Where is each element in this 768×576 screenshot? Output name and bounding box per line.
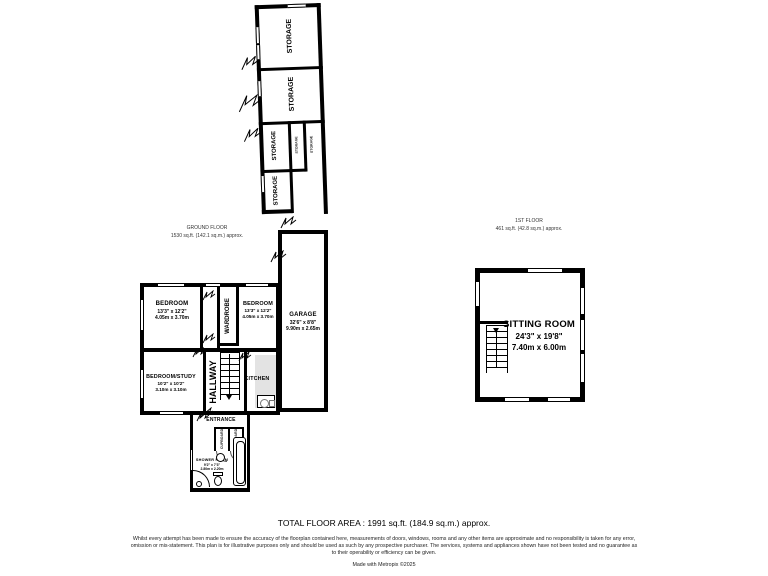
- stair-direction-arrow: [496, 331, 497, 367]
- first-floor-area: 461 sq.ft. (42.8 sq.m.) approx.: [469, 226, 589, 234]
- wall: [278, 230, 324, 234]
- opening-icon: [242, 127, 263, 144]
- window: [140, 300, 144, 330]
- opening-icon: [239, 55, 260, 72]
- stair-arrow-head: [493, 328, 499, 333]
- entrance-annex: ENTRANCE CUPBOARD CUPBOARD SHOWER ROOM 9…: [190, 412, 250, 492]
- opening-icon: [279, 216, 297, 230]
- appliance-panel: [269, 400, 275, 407]
- window: [158, 283, 184, 287]
- wall: [260, 169, 307, 174]
- opening-icon: [269, 250, 287, 264]
- window: [475, 282, 480, 306]
- house-section: BEDROOM 13'3" x 12'2" 4.05m x 3.70m WARD…: [140, 283, 280, 415]
- staircase: [220, 352, 240, 400]
- wall: [288, 121, 293, 172]
- appliance-dial: [260, 399, 269, 408]
- wall: [262, 209, 293, 214]
- room-label-bedroom: BEDROOM 13'3" x 12'2" 4.05m x 3.70m: [238, 301, 278, 320]
- room-label-shower-room: SHOWER ROOM 9'2" x 7'3" 2.80m x 2.20m: [192, 458, 232, 471]
- window: [528, 268, 562, 273]
- first-floor-caption: 1ST FLOOR 461 sq.ft. (42.8 sq.m.) approx…: [469, 218, 589, 233]
- window: [288, 4, 306, 9]
- wall: [217, 287, 220, 348]
- window: [246, 283, 268, 287]
- bathtub-inner: [236, 441, 245, 484]
- wall: [190, 488, 250, 492]
- wall: [278, 408, 328, 412]
- room-label-garage: GARAGE 32'6" x 8'8" 9.90m x 2.65m: [278, 312, 328, 333]
- window: [580, 288, 585, 314]
- room-label-bedroom-study: BEDROOM/STUDY 10'2" x 10'2" 3.10m x 3.10…: [142, 374, 200, 393]
- ground-floor-area: 1530 sq.ft. (142.1 sq.m.) approx.: [147, 233, 267, 241]
- stair-arrow-head: [226, 395, 232, 400]
- total-floor-area: TOTAL FLOOR AREA : 1991 sq.ft. (184.9 sq…: [0, 518, 768, 528]
- ground-floor-title: GROUND FLOOR: [147, 225, 267, 233]
- window: [160, 411, 183, 415]
- storage-wing: STORAGE STORAGE STORAGE STORAGE STORAGE …: [255, 3, 328, 216]
- shower-head-icon: [196, 481, 202, 487]
- wall: [217, 343, 239, 346]
- room-label-wardrobe: WARDROBE: [225, 298, 231, 334]
- room-label-kitchen: KITCHEN: [238, 376, 276, 383]
- wall: [317, 3, 328, 214]
- garage-section: GARAGE 32'6" x 8'8" 9.90m x 2.65m: [278, 230, 328, 412]
- opening-icon: [202, 333, 216, 345]
- room-label-storage: STORAGE: [288, 77, 296, 112]
- window: [580, 320, 585, 350]
- wall: [140, 348, 280, 352]
- disclaimer-text: Whilst every attempt has been made to en…: [129, 536, 639, 556]
- room-label-storage: STORAGE: [286, 19, 294, 54]
- appliance-icon: [257, 395, 275, 408]
- opening-icon: [202, 290, 216, 302]
- window: [261, 176, 266, 192]
- wall: [247, 415, 250, 492]
- wall: [214, 427, 216, 451]
- metropix-credit: Made with Metropix ©2025: [0, 562, 768, 568]
- room-label-storage-closet: STORAGE: [309, 136, 314, 153]
- first-floor-title: 1ST FLOOR: [469, 218, 589, 226]
- opening-icon: [238, 351, 252, 363]
- wall: [289, 169, 294, 213]
- bathtub: [233, 437, 246, 486]
- window: [580, 354, 585, 382]
- room-label-sitting-room: SITTING ROOM 24'3" x 19'8" 7.40m x 6.00m: [501, 318, 577, 354]
- room-label-storage: STORAGE: [271, 131, 278, 161]
- window: [255, 27, 260, 43]
- stair-direction-arrow: [229, 354, 230, 396]
- sitting-room-section: SITTING ROOM 24'3" x 19'8" 7.40m x 6.00m: [475, 268, 585, 402]
- basin: [216, 453, 225, 462]
- window: [548, 397, 570, 402]
- opening-icon: [237, 93, 262, 114]
- room-label-storage-closet: STORAGE: [294, 136, 299, 153]
- room-label-storage: STORAGE: [273, 176, 280, 206]
- room-label-bedroom: BEDROOM 13'3" x 12'2" 4.05m x 3.70m: [146, 301, 198, 322]
- room-label-hallway: HALLWAY: [208, 360, 218, 403]
- room-label-cupboard: CUPBOARD: [220, 429, 224, 449]
- toilet-bowl: [214, 476, 222, 486]
- wall: [228, 427, 230, 451]
- floor-plan: STORAGE STORAGE STORAGE STORAGE STORAGE …: [0, 0, 768, 576]
- opening-icon: [192, 347, 206, 359]
- wall: [257, 66, 323, 71]
- wall: [259, 120, 325, 125]
- wall: [303, 121, 308, 172]
- window: [505, 397, 529, 402]
- wall: [203, 352, 206, 411]
- ground-floor-caption: GROUND FLOOR 1530 sq.ft. (142.1 sq.m.) a…: [147, 225, 267, 240]
- opening-icon: [196, 411, 210, 423]
